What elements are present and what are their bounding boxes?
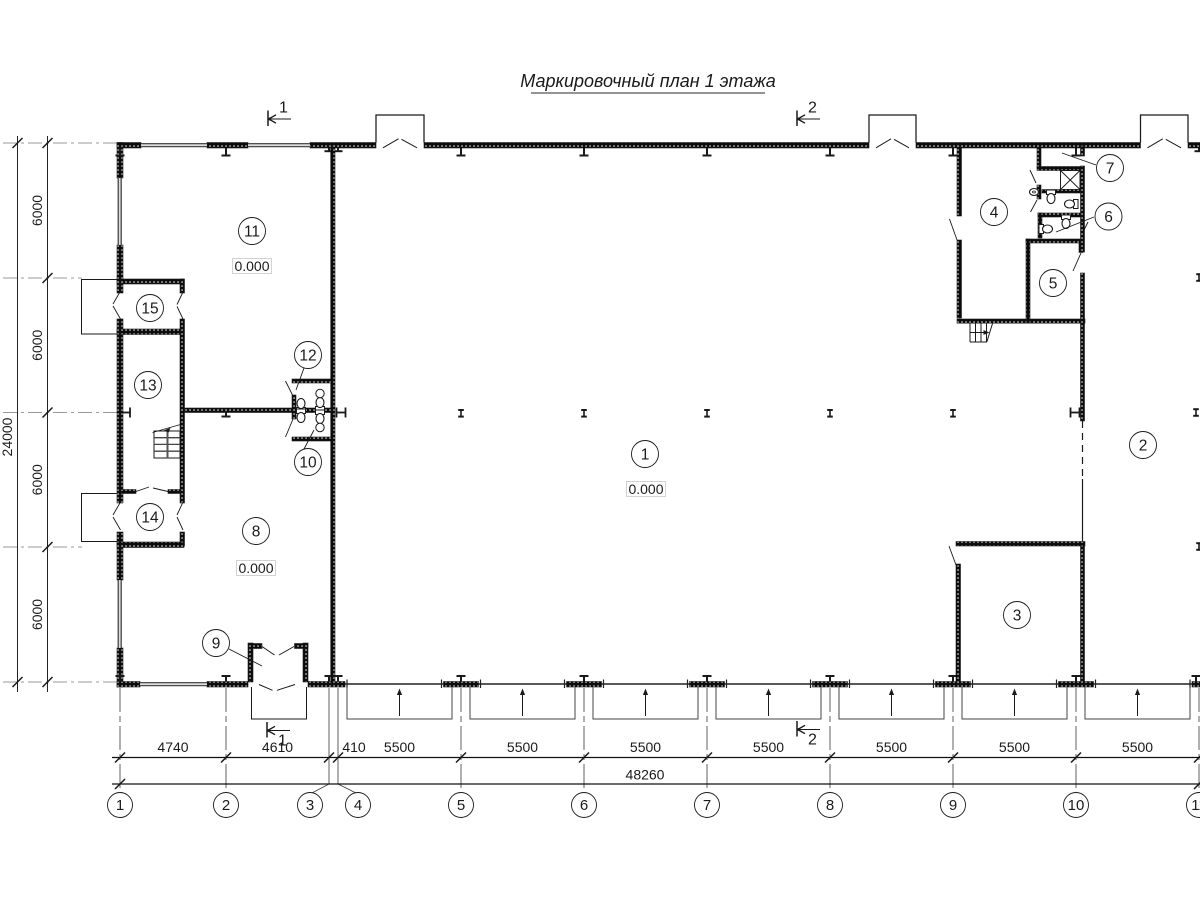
svg-text:6: 6 (1104, 209, 1113, 226)
svg-text:11: 11 (244, 224, 260, 241)
svg-text:5500: 5500 (630, 739, 661, 755)
svg-text:6000: 6000 (29, 329, 45, 360)
svg-text:410: 410 (342, 739, 366, 755)
svg-text:1: 1 (641, 447, 650, 464)
svg-text:12: 12 (299, 348, 316, 365)
svg-text:10: 10 (1068, 797, 1085, 814)
svg-text:14: 14 (141, 510, 159, 527)
svg-text:0.000: 0.000 (234, 258, 269, 274)
svg-text:5500: 5500 (1122, 739, 1153, 755)
svg-text:9: 9 (949, 797, 957, 814)
svg-text:5500: 5500 (384, 739, 415, 755)
svg-text:15: 15 (141, 301, 158, 318)
svg-text:2: 2 (808, 100, 817, 117)
svg-text:5: 5 (1049, 276, 1058, 293)
svg-text:7: 7 (1106, 161, 1115, 178)
svg-text:4: 4 (354, 797, 362, 814)
svg-text:3: 3 (1013, 608, 1022, 625)
svg-text:2: 2 (222, 797, 230, 814)
svg-text:8: 8 (826, 797, 834, 814)
svg-text:5: 5 (457, 797, 465, 814)
svg-text:4: 4 (990, 205, 999, 222)
svg-text:3: 3 (306, 797, 314, 814)
svg-text:5500: 5500 (753, 739, 784, 755)
svg-text:2: 2 (1139, 438, 1148, 455)
svg-text:5500: 5500 (876, 739, 907, 755)
svg-text:1: 1 (279, 100, 288, 117)
svg-text:5500: 5500 (507, 739, 538, 755)
svg-text:6: 6 (580, 797, 588, 814)
svg-text:2: 2 (808, 732, 817, 749)
svg-text:8: 8 (252, 524, 261, 541)
svg-text:7: 7 (703, 797, 711, 814)
svg-text:Маркировочный план 1 этажа: Маркировочный план 1 этажа (520, 71, 775, 91)
svg-text:6000: 6000 (29, 464, 45, 495)
svg-text:0.000: 0.000 (628, 481, 663, 497)
svg-text:48260: 48260 (626, 767, 665, 783)
svg-text:1: 1 (278, 733, 287, 750)
svg-text:4740: 4740 (157, 739, 188, 755)
svg-text:1: 1 (116, 797, 124, 814)
svg-text:6000: 6000 (29, 599, 45, 630)
svg-text:10: 10 (299, 455, 317, 472)
svg-text:13: 13 (139, 378, 156, 395)
svg-text:6000: 6000 (29, 195, 45, 226)
svg-text:11: 11 (1191, 797, 1200, 814)
svg-text:9: 9 (212, 636, 221, 653)
svg-text:5500: 5500 (999, 739, 1030, 755)
svg-text:0.000: 0.000 (238, 560, 273, 576)
svg-text:24000: 24000 (0, 417, 15, 456)
